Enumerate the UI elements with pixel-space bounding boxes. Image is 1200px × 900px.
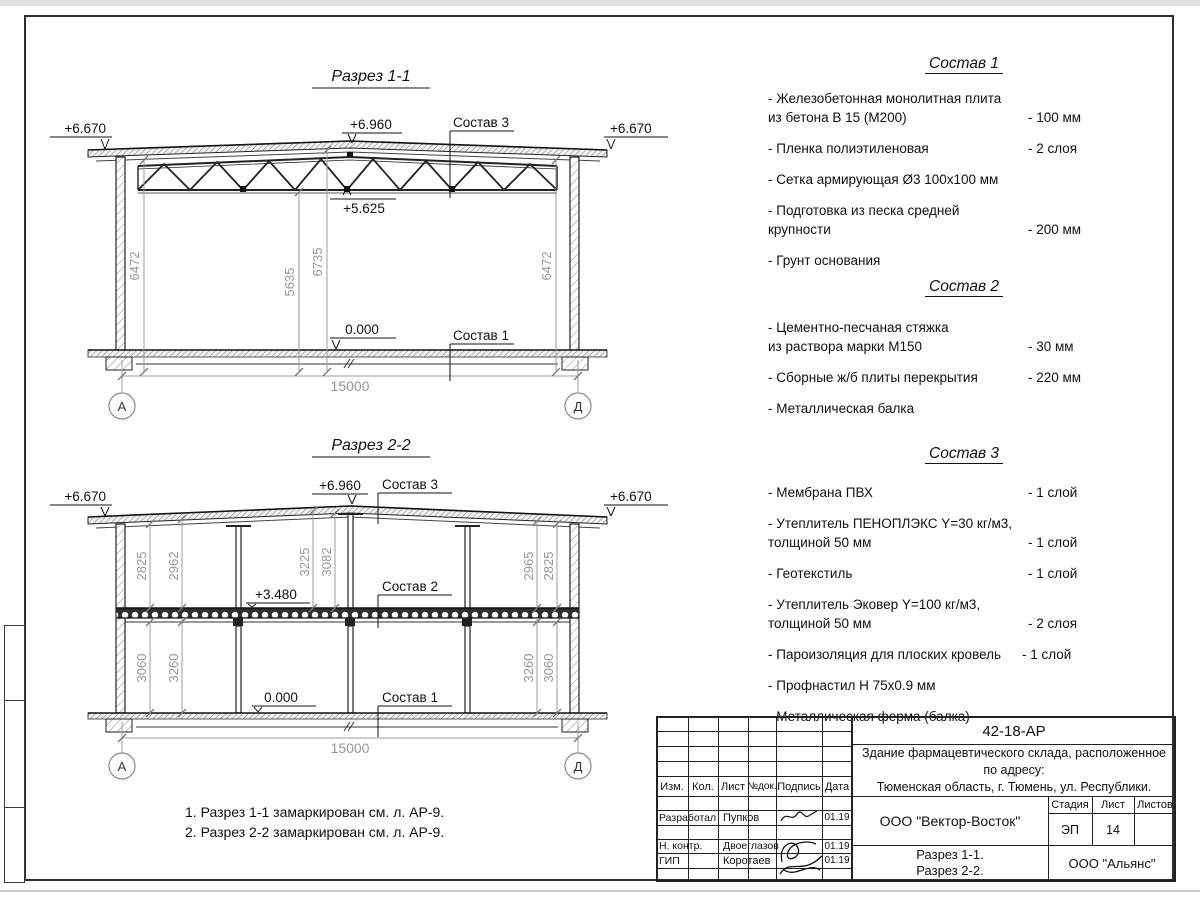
dim-span-15000: 15000 bbox=[331, 378, 370, 394]
list-item: - Мембрана ПВХ- 1 слой bbox=[768, 483, 1160, 502]
section1-title: Разрез 1-1 bbox=[331, 68, 410, 85]
col-header-podpis: Подпись bbox=[776, 777, 822, 796]
level-floor: 0.000 bbox=[264, 690, 298, 705]
level-eaves-left: +6.670 bbox=[64, 121, 106, 136]
label-sostav1: Состав 1 bbox=[453, 328, 509, 343]
dim-2825-l: 2825 bbox=[134, 552, 149, 581]
row-name-pupkov: Пупков bbox=[720, 810, 776, 825]
list-item: - Металлическая балка bbox=[768, 399, 1160, 418]
label-sostav3: Состав 3 bbox=[453, 115, 509, 130]
dim-2962-l: 2962 bbox=[166, 552, 181, 581]
sheet-header: Лист bbox=[1092, 797, 1134, 813]
dim-2825-r: 2825 bbox=[541, 552, 556, 581]
dim-6472-right: 6472 bbox=[539, 252, 554, 281]
axis-bubbles: А Д bbox=[109, 753, 591, 779]
stage-value: ЭП bbox=[1048, 814, 1092, 845]
axis-d: Д bbox=[574, 759, 583, 774]
col-header-kol: Кол. bbox=[688, 777, 718, 796]
list-item: - Геотекстиль- 1 слой bbox=[768, 564, 1160, 583]
level-eaves-left: +6.670 bbox=[64, 489, 106, 504]
row-role-gip: ГИП bbox=[656, 853, 718, 868]
composition-2-title: Состав 2 bbox=[768, 277, 1160, 296]
level-chord: +5.625 bbox=[343, 201, 385, 216]
tb-line bbox=[656, 746, 852, 747]
row-role-ncontrol: Н. контр. bbox=[656, 839, 718, 853]
axis-a: А bbox=[118, 759, 127, 774]
list-item: - Сетка армирующая Ø3 100х100 мм bbox=[768, 170, 1160, 189]
composition-1-title: Состав 1 bbox=[768, 54, 1160, 73]
col-header-izm: Изм. bbox=[656, 777, 688, 796]
col-header-data: Дата bbox=[822, 777, 852, 796]
list-item: - Пароизоляция для плоских кровель- 1 сл… bbox=[768, 645, 1160, 664]
axis-d: Д bbox=[574, 399, 583, 414]
tb-line bbox=[656, 761, 852, 762]
axis-a: А bbox=[118, 399, 127, 414]
wall-left bbox=[116, 157, 125, 352]
dim-6472-left: 6472 bbox=[127, 252, 142, 281]
signature-icon bbox=[778, 808, 820, 826]
floor-slab bbox=[116, 608, 579, 626]
ground-slab bbox=[88, 713, 607, 732]
composition-3-title: Состав 3 bbox=[768, 444, 1160, 463]
doc-number: 42-18-АР bbox=[852, 718, 1176, 744]
sheets-header: Листов bbox=[1134, 797, 1176, 813]
tb-line bbox=[656, 731, 852, 732]
label-sostav1: Состав 1 bbox=[382, 690, 438, 705]
row-date-1: 01.19 bbox=[822, 810, 852, 825]
title-block: 42-18-АР Здание фармацевтического склада… bbox=[656, 716, 1176, 882]
composition-2-title-text: Состав 2 bbox=[925, 278, 1003, 297]
tb-line bbox=[656, 825, 852, 826]
composition-2: Состав 2 - Цементно-песчаная стяжка из р… bbox=[768, 277, 1160, 430]
col-header-ndok: №док. bbox=[748, 777, 776, 796]
leader-lines bbox=[450, 131, 514, 381]
stage-header: Стадия bbox=[1048, 797, 1092, 813]
wall-right bbox=[570, 157, 579, 352]
list-item: - Сборные ж/б плиты перекрытия- 220 мм bbox=[768, 368, 1160, 387]
dim-3060-l: 3060 bbox=[134, 654, 149, 683]
list-item: - Железобетонная монолитная плита из бет… bbox=[768, 89, 1160, 127]
label-sostav3: Состав 3 bbox=[382, 477, 438, 492]
axis-bubbles: А Д bbox=[109, 393, 591, 419]
drawing-sheet: { "s1": { "title": "Разрез 1-1", "lvl_ea… bbox=[0, 0, 1200, 900]
level-ridge: +6.960 bbox=[350, 117, 392, 132]
list-item: - Подготовка из песка средней крупности-… bbox=[768, 201, 1160, 239]
dim-3060-r: 3060 bbox=[541, 654, 556, 683]
drawing-title: Разрез 1-1. Разрез 2-2. bbox=[852, 846, 1048, 880]
composition-3-title-text: Состав 3 bbox=[925, 445, 1003, 464]
list-item: - Пленка полиэтиленовая- 2 слоя bbox=[768, 139, 1160, 158]
page-edge-top bbox=[0, 0, 1200, 6]
level-floor: 0.000 bbox=[345, 322, 379, 337]
sheet-notes: 1. Разрез 1-1 замаркирован см. л. АР-9. … bbox=[185, 802, 444, 842]
composition-1-title-text: Состав 1 bbox=[925, 55, 1003, 74]
dim-3225: 3225 bbox=[297, 548, 312, 577]
level-eaves-right: +6.670 bbox=[610, 121, 652, 136]
composition-3: Состав 3 - Мембрана ПВХ- 1 слой - Утепли… bbox=[768, 444, 1160, 738]
row-name-korotaev: Коротаев bbox=[720, 853, 776, 868]
section2-title: Разрез 2-2 bbox=[331, 437, 410, 454]
label-sostav2: Состав 2 bbox=[382, 579, 438, 594]
tb-line bbox=[656, 880, 1176, 882]
level-floor2: +3.480 bbox=[255, 587, 297, 602]
list-item: - Утеплитель ПЕНОПЛЭКС Y=30 кг/м3, толщи… bbox=[768, 514, 1160, 552]
project-name: Здание фармацевтического склада, располо… bbox=[854, 745, 1174, 796]
section-1-1-drawing: Разрез 1-1 bbox=[24, 36, 724, 430]
dim-span-15000: 15000 bbox=[331, 740, 370, 756]
margin-box-2 bbox=[4, 700, 25, 808]
list-item: - Утеплитель Эковер Y=100 кг/м3, толщино… bbox=[768, 595, 1160, 633]
contractor-name: ООО "Альянс" bbox=[1048, 846, 1176, 880]
composition-1: Состав 1 - Железобетонная монолитная пли… bbox=[768, 54, 1160, 282]
dim-3260-l: 3260 bbox=[166, 654, 181, 683]
sheets-value bbox=[1134, 814, 1176, 845]
list-item: - Цементно-песчаная стяжка из раствора м… bbox=[768, 318, 1160, 356]
tb-line bbox=[718, 716, 719, 882]
signature-icon bbox=[774, 834, 826, 880]
ground-slab bbox=[88, 350, 607, 370]
section-2-2-drawing: Разрез 2-2 bbox=[24, 430, 724, 790]
row-name-dvoeglazov: Двоеглазов bbox=[720, 839, 776, 853]
row-date-3: 01.19 bbox=[822, 853, 852, 868]
page-edge-bottom bbox=[0, 890, 1200, 892]
dim-3260-r: 3260 bbox=[521, 654, 536, 683]
sheet-value: 14 bbox=[1092, 814, 1134, 845]
roof-truss bbox=[138, 152, 557, 193]
dim-3082: 3082 bbox=[319, 548, 334, 577]
org-name: ООО "Вектор-Восток" bbox=[852, 797, 1048, 845]
row-date-2: 01.19 bbox=[822, 839, 852, 853]
level-eaves-right: +6.670 bbox=[610, 489, 652, 504]
list-item: - Грунт основания bbox=[768, 251, 1160, 270]
dim-2965-r: 2965 bbox=[521, 552, 536, 581]
col-header-list: Лист bbox=[718, 777, 748, 796]
margin-box-1 bbox=[4, 625, 25, 701]
row-role-developed: Разработал bbox=[656, 810, 718, 825]
dim-5635: 5635 bbox=[282, 268, 297, 297]
level-ridge: +6.960 bbox=[319, 478, 361, 493]
list-item: - Профнастил Н 75х0.9 мм bbox=[768, 676, 1160, 695]
dim-6735: 6735 bbox=[310, 248, 325, 277]
margin-box-3 bbox=[4, 807, 25, 883]
